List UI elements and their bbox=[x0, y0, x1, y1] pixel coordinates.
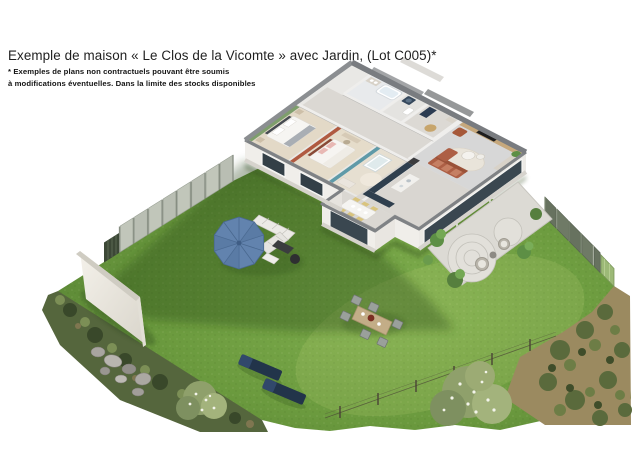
bbq-grill bbox=[290, 254, 300, 264]
page-title: Exemple de maison « Le Clos de la Vicomt… bbox=[8, 48, 437, 63]
parasol bbox=[214, 217, 263, 269]
disclaimer-line-2: à modifications éventuelles. Dans la lim… bbox=[8, 79, 256, 88]
floorplan-marketing-image: Exemple de maison « Le Clos de la Vicomt… bbox=[0, 0, 640, 470]
table-bowl bbox=[368, 315, 375, 322]
disclaimer-line-1: * Exemples de plans non contractuels pou… bbox=[8, 67, 229, 76]
patio-side-table bbox=[490, 252, 497, 259]
